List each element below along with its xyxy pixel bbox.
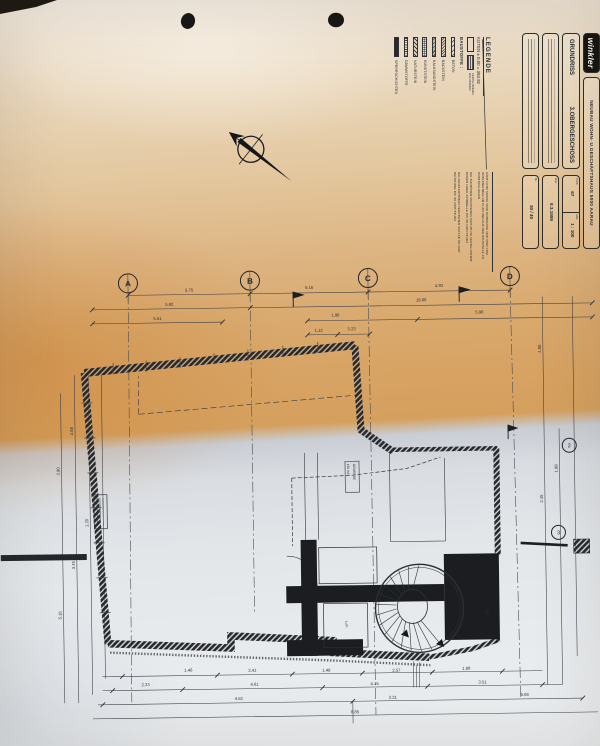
- dimension-label: 3.21: [389, 695, 398, 700]
- material-label: KUNSTSTEIN: [423, 60, 427, 83]
- winkler-logo: winkler: [583, 33, 600, 73]
- material-label: BETON: [451, 60, 455, 73]
- dimension-label: 1.20: [84, 518, 89, 527]
- dimension-label: 5.92: [165, 302, 174, 307]
- drawing-subtitle: 3.OBERGESCHOSS: [568, 107, 574, 163]
- material-label: BACKSTEIN: [441, 60, 445, 81]
- material-row: NATURSTEIN: [411, 37, 420, 173]
- legend: LEGENDE KOTEN ± 0.00 = 383.92 FERTIG BOD…: [373, 37, 491, 173]
- floor-sample: FERTIG BODEN ROH BODEN: [468, 37, 475, 173]
- dimension-label: 5.98: [475, 309, 484, 314]
- naturstein-hatch-swatch: [413, 37, 418, 57]
- dimension-label: 1.98: [554, 464, 559, 473]
- roh-boden-swatch: [468, 55, 475, 70]
- sheet-number-box: Nr. 30 / 40: [522, 175, 539, 249]
- right-side-details: [1, 539, 590, 561]
- dimension-label: 1.46: [184, 668, 193, 673]
- dimension-label: 1.88: [462, 666, 471, 671]
- stair-tread: [377, 609, 397, 615]
- level-marker-icons: [293, 286, 517, 442]
- grid-number: 2: [568, 443, 571, 449]
- paper-corner-shadow: [0, 0, 57, 14]
- dimension-label: 2.57: [392, 668, 401, 673]
- material-row: KUNSTSTEIN: [420, 37, 429, 173]
- legend-heading: LEGENDE: [483, 37, 491, 96]
- dimension-label: 4.93: [435, 283, 444, 288]
- stair-tread: [421, 620, 442, 646]
- interior-walls: [138, 372, 446, 588]
- dimension-lines: [59, 266, 598, 727]
- date-label: Dat.: [554, 178, 557, 246]
- material-label: DÄMMSTOFFE: [404, 60, 408, 86]
- material-label: NATURSTEIN: [413, 60, 417, 83]
- room-stamp: GEWERBE 150 m2: [345, 461, 359, 492]
- beton-hatch-swatch: [451, 37, 456, 57]
- general-notes: SÄMTLICHE MASSE SIND ROHMASSE UND SIND V…: [374, 172, 493, 272]
- grid-bubbles: [118, 266, 577, 546]
- photographed-floor-plan: A B C D 2 3: [0, 0, 600, 746]
- address-box: [522, 33, 539, 169]
- plan-number-cell: Pl.Nr. 67: [563, 176, 579, 212]
- sheet-number-label: Nr.: [534, 178, 537, 246]
- window-ticks: [81, 342, 322, 613]
- drawing-title-box: GRUNDRISS 3.OBERGESCHOSS: [562, 33, 580, 169]
- plan-number-box: Pl.Nr. 67 Mst. 1 : 100: [562, 175, 580, 249]
- scale-cell: Mst. 1 : 100: [563, 212, 579, 249]
- sheet-number-value: 30 / 40: [528, 178, 534, 246]
- dimension-label: 18.68: [416, 297, 427, 302]
- kalksandstein-hatch-swatch: [432, 37, 437, 57]
- north-arrow-icon: [217, 117, 303, 196]
- note-text: DIE TÜRHÖHEN VERSTEHEN SICH AB OK FERTIG…: [464, 172, 472, 268]
- stair-tread: [380, 613, 398, 625]
- dimension-label: 5.16: [305, 285, 314, 290]
- stair-tread: [413, 622, 421, 651]
- scale-label: Mst.: [575, 215, 578, 247]
- dimension-label: 4.88: [69, 426, 74, 435]
- stair-tread: [409, 622, 411, 650]
- stair-tread: [377, 604, 397, 605]
- drawing-title: GRUNDRISS: [568, 39, 574, 75]
- daemmstoffe-hatch-swatch: [404, 37, 409, 57]
- dimension-label: 5.51: [153, 316, 162, 321]
- dimension-label: 1.12: [315, 328, 324, 333]
- dimension-label: 3.51: [478, 679, 487, 684]
- plan-number-value: 67: [569, 178, 575, 210]
- material-row: DÄMMSTOFFE: [401, 37, 410, 173]
- kunststein-hatch-swatch: [422, 37, 427, 57]
- stair-tread: [385, 616, 400, 634]
- date-value: 8.3.1989: [548, 178, 554, 246]
- svg-text:GEWERBE: GEWERBE: [352, 464, 356, 480]
- dimension-label: 8.85: [351, 709, 360, 714]
- dimension-label: 1.48: [322, 668, 331, 673]
- dimension-label: 4.61: [250, 682, 259, 687]
- svg-text:150 m2: 150 m2: [346, 464, 350, 475]
- material-row: BACKSTEIN: [439, 37, 448, 173]
- lift-label: LIFT: [345, 621, 349, 628]
- dimension-label: 3.23: [348, 326, 357, 331]
- stair-tread: [417, 622, 432, 650]
- dimension-label: 2.90: [485, 609, 490, 618]
- architect-box: [542, 33, 559, 169]
- date-box: Dat. 8.3.1989: [542, 175, 559, 249]
- fertig-boden-swatch: [468, 37, 475, 52]
- material-row: BETON: [448, 37, 457, 173]
- project-title: NEUBAU WOHN- U.GESCHÄFTSHAUS 5000 AARAU: [583, 77, 600, 249]
- dimension-label: 2.33: [141, 682, 150, 687]
- sperrschichten-hatch-swatch: [394, 37, 399, 57]
- punch-holes: [179, 12, 344, 31]
- plan-number-label: Pl.Nr.: [575, 178, 578, 210]
- floor-plan-drawing: A B C D 2 3: [0, 0, 600, 746]
- baustoffe-heading: BAUSTOFFE :: [460, 37, 465, 173]
- dimension-label: 5.16: [58, 611, 63, 620]
- dimension-label: 4.52: [235, 696, 244, 701]
- dimension-label: 5.75: [185, 287, 194, 292]
- datum-note: KOTEN ± 0.00 = 383.92: [476, 37, 481, 173]
- dimension-label: 4.88: [537, 344, 542, 353]
- stair-tread: [392, 619, 403, 642]
- note-text: DIE FENSTERHÖHEN VERSTEHEN SICH AB OK RO…: [452, 172, 460, 268]
- material-row: KALKSANDSTEIN: [429, 37, 438, 173]
- illegible-small-print: [546, 39, 555, 163]
- note-text: SÄMTLICHE MASSE SIND ROHMASSE UND SIND V…: [476, 172, 488, 268]
- material-label: SPERRSCHICHTEN: [394, 60, 398, 94]
- dimension-label: 2.41: [248, 668, 257, 673]
- material-row: SPERRSCHICHTEN: [392, 37, 401, 173]
- grid-number: 3: [557, 530, 560, 536]
- title-block: winkler NEUBAU WOHN- U.GESCHÄFTSHAUS 500…: [520, 33, 600, 249]
- dimension-label: 2.45: [539, 494, 544, 503]
- illegible-small-print: [526, 39, 535, 163]
- dimension-label: 2.90: [56, 467, 61, 476]
- dimension-label: 6.66: [521, 692, 530, 697]
- dimension-label: 4.15: [370, 681, 379, 686]
- backstein-hatch-swatch: [441, 37, 446, 57]
- dimension-label: 1.98: [331, 312, 340, 317]
- material-label: KALKSANDSTEIN: [432, 60, 436, 91]
- stair-core: [286, 537, 501, 656]
- dimension-label: 3.45: [71, 560, 76, 569]
- scale-value: 1 : 100: [569, 215, 575, 247]
